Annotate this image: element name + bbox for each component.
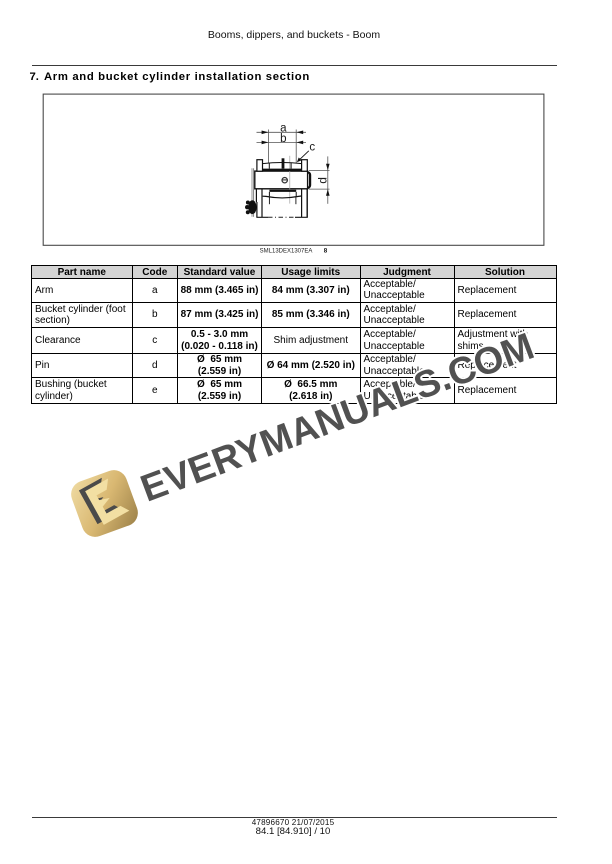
svg-text:b: b [280, 133, 286, 145]
svg-text:SML13DEX1307EA: SML13DEX1307EA [260, 249, 313, 255]
svg-text:d: d [316, 177, 330, 184]
svg-text:c: c [309, 141, 315, 153]
svg-text:8: 8 [324, 248, 328, 255]
